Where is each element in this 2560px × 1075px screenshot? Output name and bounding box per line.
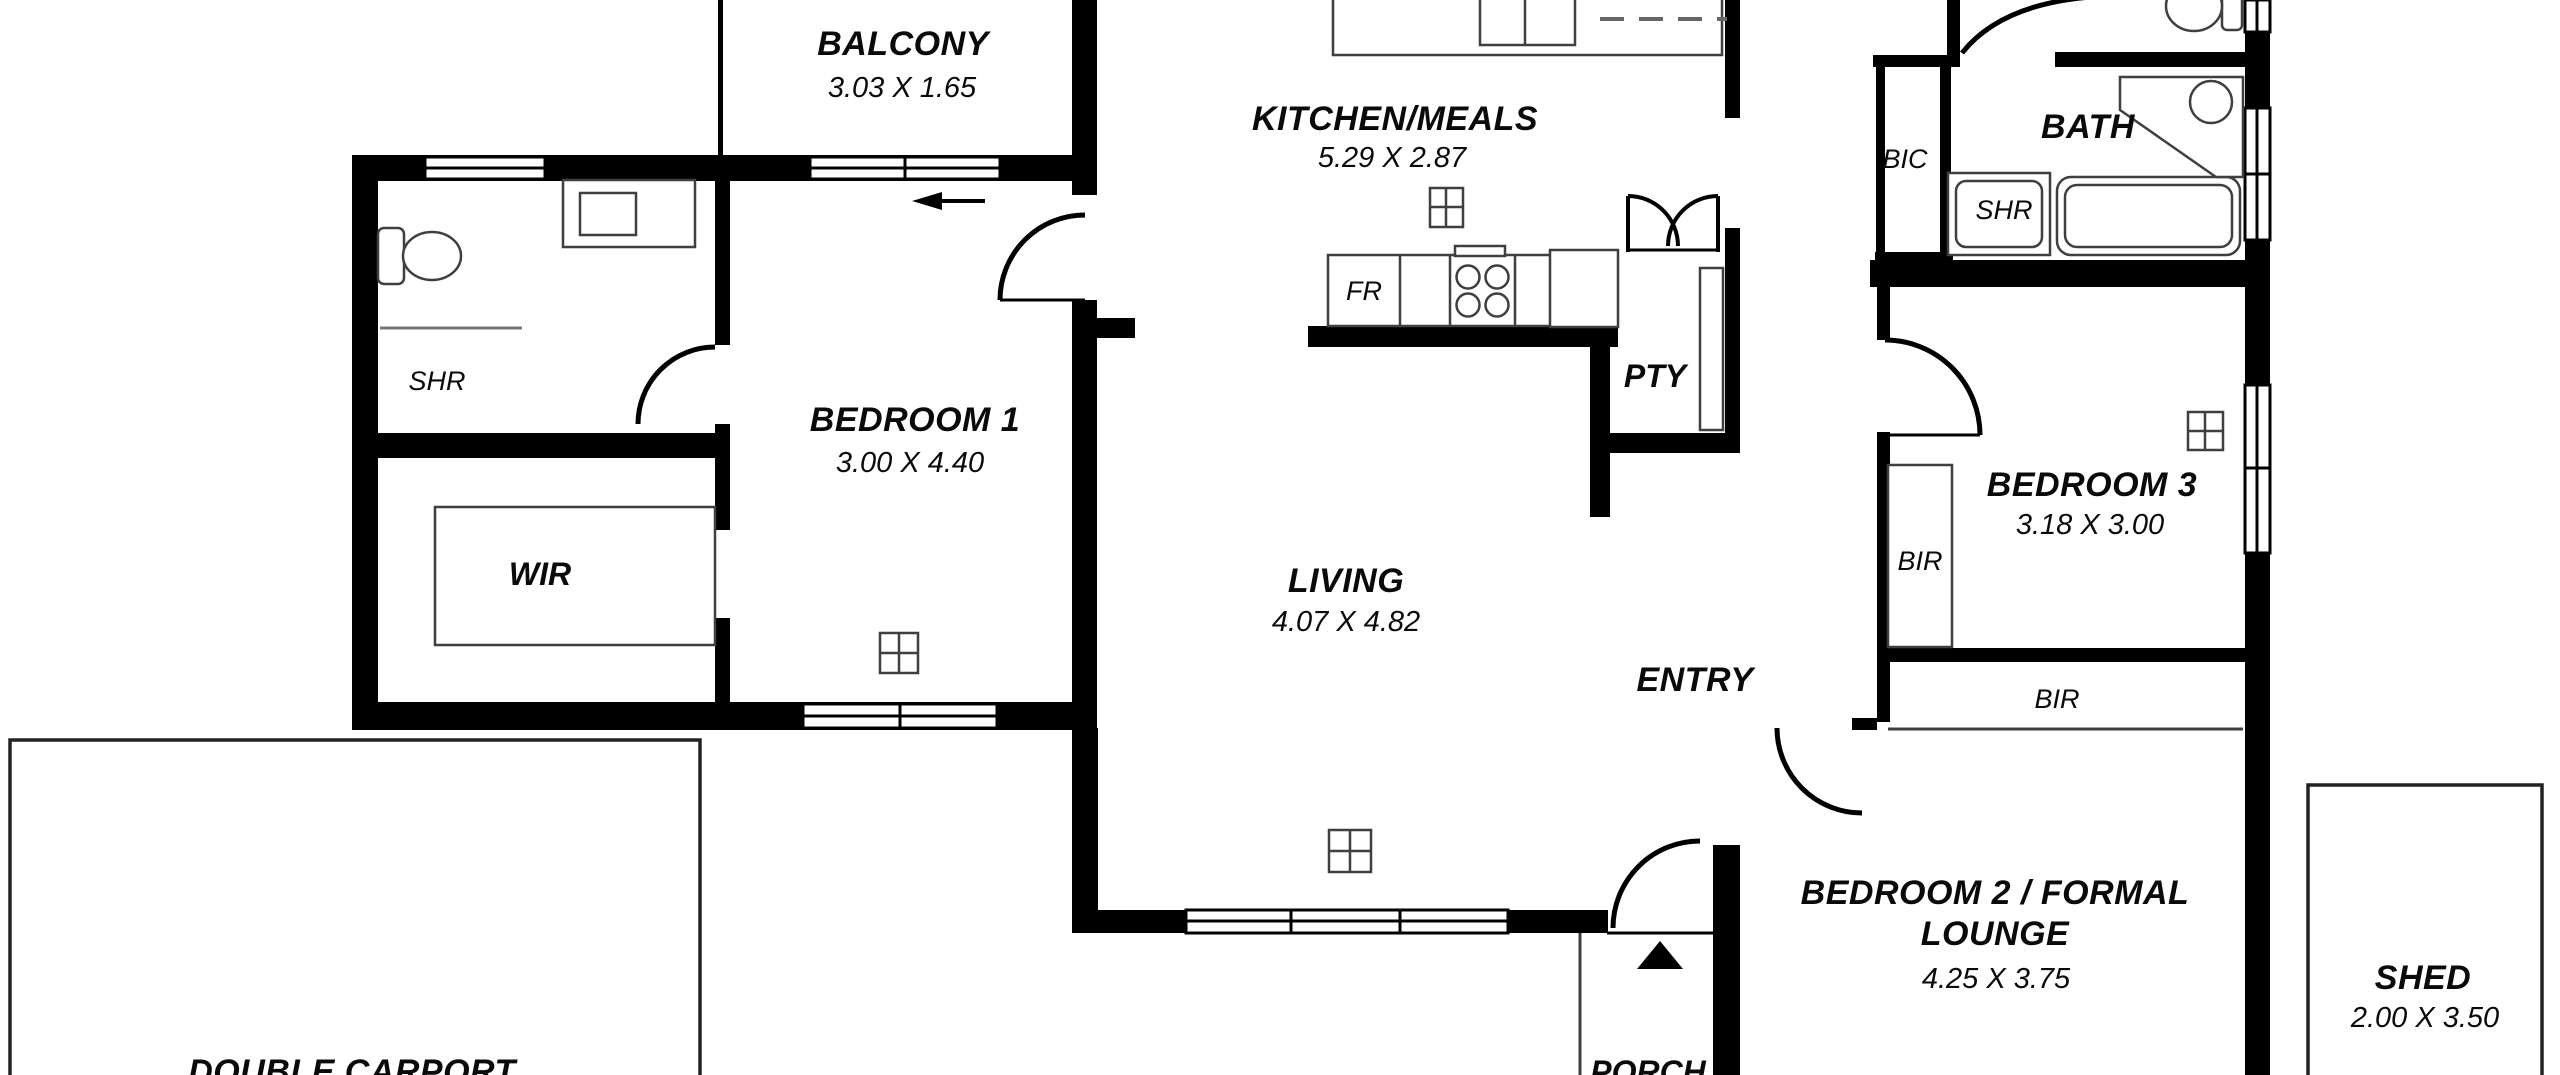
balcony-label: BALCONY — [817, 23, 989, 66]
wall — [1072, 0, 1097, 195]
bic-label: BIC — [1882, 143, 1927, 177]
wall — [2245, 32, 2270, 110]
window-ensuite — [425, 157, 545, 179]
window-bedroom1-bottom — [803, 704, 997, 728]
bedroom2-label-line1: BEDROOM 2 / FORMAL — [1801, 872, 2190, 915]
bedroom1-dims: 3.00 X 4.40 — [836, 445, 984, 481]
bath-door-arc — [1962, 0, 2140, 53]
vent-symbol-kitchen — [1430, 188, 1463, 227]
shed-dims: 2.00 X 3.50 — [2351, 1000, 2499, 1036]
ensuite-door-arc — [638, 347, 715, 424]
bathtub-icon — [2057, 177, 2240, 255]
kitchen-label: KITCHEN/MEALS — [1252, 98, 1538, 141]
window-living — [1186, 910, 1508, 933]
wall — [715, 618, 730, 708]
vent-symbol-bedroom1 — [880, 633, 918, 673]
vent-symbol-living — [1329, 830, 1371, 872]
wall-stub — [1097, 318, 1135, 338]
toilet-icon — [378, 228, 461, 284]
wall — [1072, 728, 1098, 933]
wir-label: WIR — [509, 554, 571, 594]
bedroom3-label: BEDROOM 3 — [1987, 464, 2197, 507]
carport-outline — [10, 740, 700, 1075]
wall — [352, 433, 730, 458]
living-dims: 4.07 X 4.82 — [1272, 604, 1420, 640]
wardrobe-outline — [435, 507, 715, 645]
wall — [1947, 0, 1960, 55]
kitchen-counter — [1333, 0, 1722, 55]
kitchen-dims: 5.29 X 2.87 — [1318, 140, 1466, 176]
bath-shower-label: SHR — [1975, 194, 2032, 228]
wall — [1877, 648, 2269, 662]
wall — [715, 424, 730, 530]
floor-plan: BALCONY 3.03 X 1.65 KITCHEN/MEALS 5.29 X… — [0, 0, 2560, 1075]
bedroom1-door-arc — [1000, 215, 1085, 300]
bedroom3-dims: 3.18 X 3.00 — [2016, 507, 2164, 543]
bedroom3-door-arc — [1885, 340, 1980, 435]
cooktop-panel — [1455, 246, 1505, 256]
wall — [1072, 300, 1097, 710]
porch-label: PORCH — [1590, 1052, 1706, 1075]
sink-icon — [1480, 0, 1575, 45]
bedroom3-robe-label: BIR — [1897, 545, 1942, 579]
shed-label: SHED — [2375, 957, 2471, 1000]
carport-label: DOUBLE CARPORT — [188, 1051, 516, 1075]
wall — [2055, 52, 2245, 67]
window-bedroom1-top — [810, 157, 1000, 179]
pantry-label: PTY — [1624, 356, 1686, 396]
wall — [1870, 260, 2270, 287]
bedroom1-label: BEDROOM 1 — [810, 399, 1020, 442]
wall — [715, 180, 730, 345]
bedroom2-robe-label: BIR — [2034, 683, 2079, 717]
wall — [1725, 0, 1740, 118]
wall — [1072, 910, 1186, 933]
window-bedroom3 — [2245, 385, 2270, 553]
bath-vanity-icon — [2120, 77, 2243, 177]
entry-marker-triangle-icon — [1637, 941, 1683, 969]
window-bath — [2245, 108, 2270, 240]
wall — [1590, 433, 1740, 453]
entry-label: ENTRY — [1636, 659, 1753, 702]
wall — [1725, 228, 1740, 453]
pantry-shelf — [1700, 268, 1723, 430]
balcony-wall — [718, 0, 723, 155]
vent-symbol-bedroom3 — [2188, 412, 2223, 450]
wall — [1713, 845, 1740, 1075]
wall — [2245, 240, 2270, 385]
fridge-label: FR — [1346, 275, 1382, 309]
wall — [1875, 252, 1953, 263]
bath-label: BATH — [2041, 106, 2135, 149]
wall — [1590, 326, 1610, 517]
balcony-dims: 3.03 X 1.65 — [828, 70, 976, 106]
front-door-arc — [1613, 841, 1700, 928]
window-wc — [2245, 0, 2270, 32]
wall — [2245, 553, 2270, 1075]
ensuite-shower-label: SHR — [408, 365, 465, 399]
kitchen-peninsula-wall — [1308, 326, 1618, 347]
bedroom2-label-line2: LOUNGE — [1921, 913, 2069, 956]
living-label: LIVING — [1288, 560, 1404, 603]
wall — [1508, 910, 1608, 933]
wc-toilet-icon — [2166, 0, 2242, 31]
wall-stub — [1852, 718, 1877, 730]
sliding-door-arrow-icon — [912, 192, 985, 210]
vanity-icon — [563, 180, 695, 247]
bedroom2-dims: 4.25 X 3.75 — [1922, 961, 2070, 997]
bedroom2-door-arc — [1777, 728, 1862, 813]
